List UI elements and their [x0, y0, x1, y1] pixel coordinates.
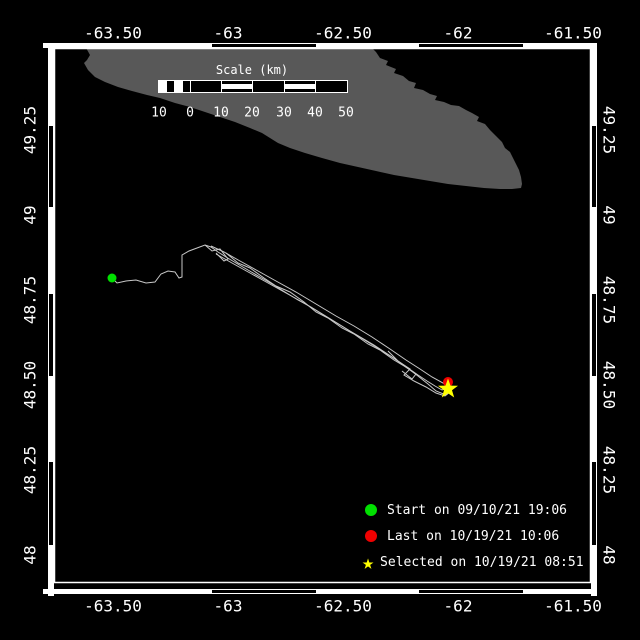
- axis-tick-label: 49: [21, 205, 40, 224]
- axis-tick-label: 48.25: [21, 446, 40, 494]
- scale-bar-segment: [221, 80, 253, 93]
- drifter-track[interactable]: [112, 245, 448, 390]
- frame-zebra-segment: [48, 461, 54, 546]
- frame-zebra-segment: [43, 43, 211, 48]
- legend-selected-star-icon: ★: [362, 555, 374, 569]
- frame-zebra-segment: [524, 589, 596, 594]
- scale-bar-segment: [252, 80, 285, 93]
- frame-zebra-segment: [48, 125, 54, 208]
- frame-border-left: [48, 0, 54, 640]
- drifter-track[interactable]: [211, 246, 448, 387]
- axis-tick-label: 48.25: [600, 446, 619, 494]
- frame-zebra-segment: [317, 589, 418, 594]
- axis-tick-label: -63.50: [84, 24, 142, 43]
- map-canvas: -63.50-63-62.50-62-61.50 -63.50-63-62.50…: [0, 0, 640, 640]
- axis-tick-label: 48: [21, 545, 40, 564]
- axis-tick-label: -63: [214, 597, 243, 616]
- axis-tick-label: 48: [600, 545, 619, 564]
- frame-zebra-segment: [418, 43, 524, 48]
- legend-item: ★Selected on 10/19/21 08:51: [365, 549, 584, 575]
- frame-zebra-segment: [418, 589, 524, 594]
- scale-bar-segment: [190, 80, 222, 93]
- scale-bar-number: 0: [186, 106, 194, 121]
- frame-zebra-segment: [524, 43, 596, 48]
- frame-zebra-segment: [48, 293, 54, 377]
- axis-tick-label: 48.75: [600, 276, 619, 324]
- axis-tick-label: -63.50: [84, 597, 142, 616]
- scale-bar-segment: [315, 80, 348, 93]
- frame-border-bottom: [0, 589, 640, 594]
- frame-zebra-segment: [48, 377, 54, 461]
- legend-item: Last on 10/19/21 10:06: [365, 523, 559, 549]
- frame-zebra-segment: [591, 546, 597, 596]
- axis-tick-label: -62: [444, 597, 473, 616]
- axis-tick-label: 49.25: [21, 106, 40, 154]
- legend-last-label: Last on 10/19/21 10:06: [387, 529, 559, 544]
- frame-zebra-segment: [43, 589, 211, 594]
- landmass: [84, 46, 522, 189]
- scale-bar-number: 40: [307, 106, 323, 121]
- drifter-track[interactable]: [226, 253, 416, 379]
- frame-zebra-segment: [591, 43, 597, 125]
- legend-item: Start on 09/10/21 19:06: [365, 497, 567, 523]
- frame-zebra-segment: [591, 461, 597, 546]
- frame-border-top: [0, 43, 640, 48]
- axis-tick-label: 48.50: [600, 361, 619, 409]
- legend-start-label: Start on 09/10/21 19:06: [387, 503, 567, 518]
- frame-zebra-segment: [317, 43, 418, 48]
- scale-bar-number: 10: [213, 106, 229, 121]
- axis-tick-label: -61.50: [544, 24, 602, 43]
- axis-tick-label: 48.50: [21, 361, 40, 409]
- legend-start-marker-icon: [365, 504, 377, 516]
- axis-tick-label: -62.50: [314, 597, 372, 616]
- axis-tick-label: 49.25: [600, 106, 619, 154]
- legend-selected-label: Selected on 10/19/21 08:51: [380, 555, 584, 570]
- scale-bar-title: Scale (km): [216, 63, 288, 77]
- axis-tick-label: -61.50: [544, 597, 602, 616]
- frame-zebra-segment: [211, 589, 317, 594]
- scale-bar-number: 50: [338, 106, 354, 121]
- frame-zebra-segment: [591, 293, 597, 377]
- start-position-marker[interactable]: [108, 274, 117, 283]
- frame-zebra-segment: [591, 377, 597, 461]
- frame-zebra-segment: [48, 208, 54, 293]
- frame-zebra-segment: [48, 546, 54, 596]
- frame-zebra-segment: [591, 125, 597, 208]
- axis-tick-label: 48.75: [21, 276, 40, 324]
- frame-zebra-segment: [48, 43, 54, 125]
- legend-last-marker-icon: [365, 530, 377, 542]
- axis-tick-label: -62.50: [314, 24, 372, 43]
- scale-bar-segment: [284, 80, 316, 93]
- axis-tick-label: 49: [600, 205, 619, 224]
- scale-bar-number: 10: [151, 106, 167, 121]
- axis-tick-label: -63: [214, 24, 243, 43]
- axis-tick-label: -62: [444, 24, 473, 43]
- frame-zebra-segment: [211, 43, 317, 48]
- frame-zebra-segment: [591, 208, 597, 293]
- scale-bar-number: 30: [276, 106, 292, 121]
- frame-border-right: [591, 0, 597, 640]
- scale-bar-number: 20: [244, 106, 260, 121]
